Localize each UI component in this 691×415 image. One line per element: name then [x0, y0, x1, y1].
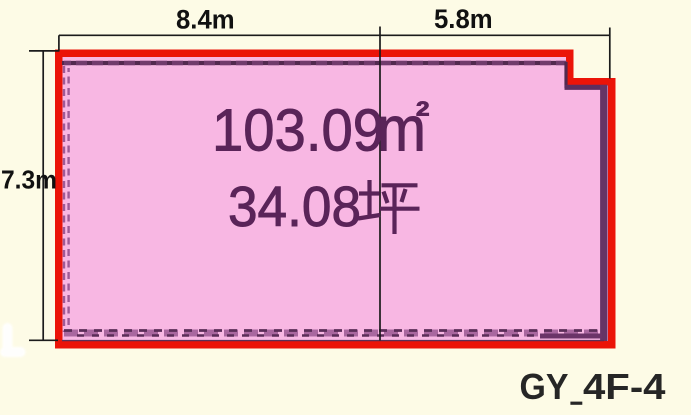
svg-text:5.8m: 5.8m: [434, 4, 493, 34]
svg-text:103.09: 103.09: [212, 98, 384, 164]
svg-text:8.4m: 8.4m: [176, 4, 235, 34]
svg-text:4F-4: 4F-4: [583, 366, 666, 407]
svg-text:GY: GY: [520, 366, 569, 407]
svg-text:34.08: 34.08: [228, 175, 361, 239]
svg-text:2: 2: [416, 99, 430, 121]
svg-text:7.3m: 7.3m: [1, 164, 57, 194]
